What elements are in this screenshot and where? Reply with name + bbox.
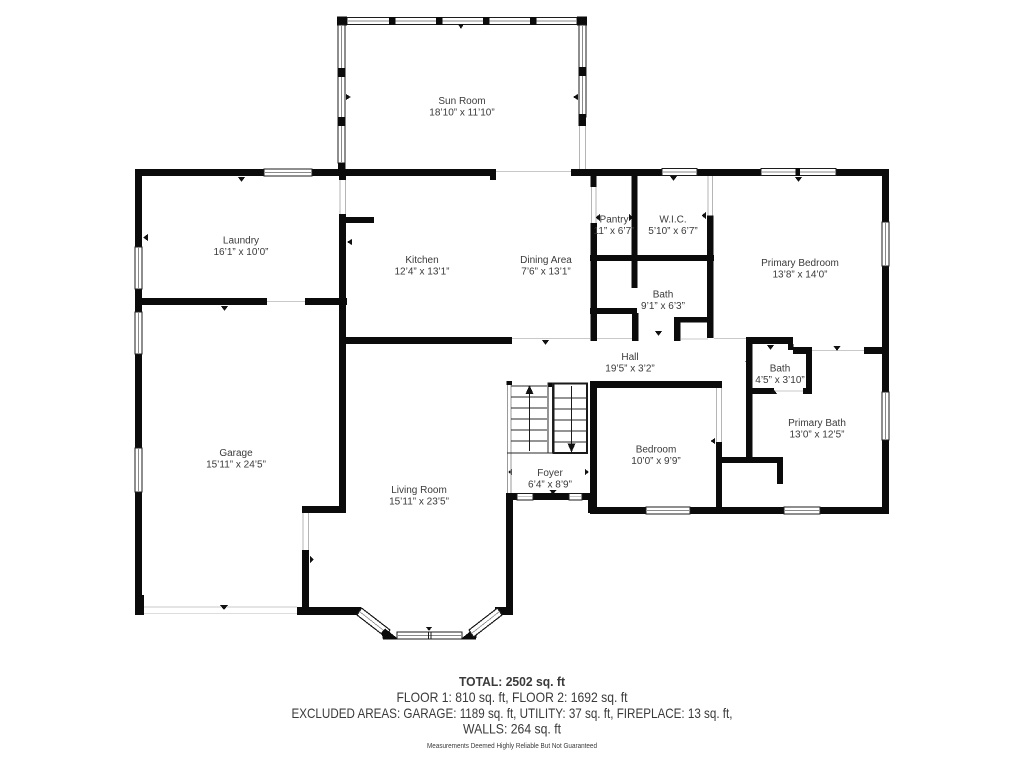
svg-text:WALLS: 264 sq. ft: WALLS: 264 sq. ft (463, 721, 561, 737)
svg-text:15’11” x 24’5”: 15’11” x 24’5” (206, 459, 266, 470)
svg-text:Sun Room: Sun Room (438, 96, 485, 107)
svg-text:TOTAL: 2502 sq. ft: TOTAL: 2502 sq. ft (459, 674, 566, 689)
svg-text:13’0” x 12’5”: 13’0” x 12’5” (789, 429, 844, 440)
svg-text:19’5” x 3’2”: 19’5” x 3’2” (605, 363, 654, 374)
svg-text:Bath: Bath (653, 290, 674, 301)
svg-text:10’0” x 9’9”: 10’0” x 9’9” (631, 456, 680, 467)
svg-text:12’4” x 13’1”: 12’4” x 13’1” (394, 266, 449, 277)
svg-text:Bath: Bath (770, 364, 791, 375)
svg-text:6’4” x 8’9”: 6’4” x 8’9” (528, 479, 572, 490)
svg-text:Primary Bath: Primary Bath (788, 418, 846, 429)
svg-text:9’1” x 6’3”: 9’1” x 6’3” (641, 301, 685, 312)
svg-text:5’10” x 6’7”: 5’10” x 6’7” (648, 226, 697, 237)
svg-text:Measurements Deemed Highly Rel: Measurements Deemed Highly Reliable But … (427, 743, 597, 750)
svg-text:Pantry: Pantry (600, 215, 629, 226)
svg-text:4’5” x 3’10”: 4’5” x 3’10” (755, 375, 804, 386)
svg-text:18’10” x 11’10”: 18’10” x 11’10” (429, 107, 494, 118)
svg-text:Living Room: Living Room (391, 485, 447, 496)
svg-text:16’1” x 10’0”: 16’1” x 10’0” (213, 247, 268, 258)
svg-text:15’11” x 23’5”: 15’11” x 23’5” (389, 496, 449, 507)
svg-text:Kitchen: Kitchen (405, 255, 438, 266)
svg-text:Foyer: Foyer (537, 468, 563, 479)
svg-text:13’8” x 14’0”: 13’8” x 14’0” (772, 269, 827, 280)
svg-text:Hall: Hall (621, 352, 638, 363)
svg-text:FLOOR 1: 810 sq. ft, FLOOR 2:: FLOOR 1: 810 sq. ft, FLOOR 2: 1692 sq. f… (397, 689, 628, 705)
svg-text:EXCLUDED AREAS: GARAGE: 1189 s: EXCLUDED AREAS: GARAGE: 1189 sq. ft, UTI… (292, 705, 733, 721)
svg-text:W.I.C.: W.I.C. (659, 215, 686, 226)
svg-text:Garage: Garage (219, 448, 253, 459)
svg-text:Dining Area: Dining Area (520, 255, 572, 266)
svg-text:Laundry: Laundry (223, 236, 259, 247)
svg-text:7’6” x 13’1”: 7’6” x 13’1” (521, 266, 570, 277)
svg-text:11” x 6’7”: 11” x 6’7” (594, 226, 635, 237)
svg-text:Bedroom: Bedroom (636, 445, 677, 456)
svg-text:Primary Bedroom: Primary Bedroom (761, 258, 839, 269)
